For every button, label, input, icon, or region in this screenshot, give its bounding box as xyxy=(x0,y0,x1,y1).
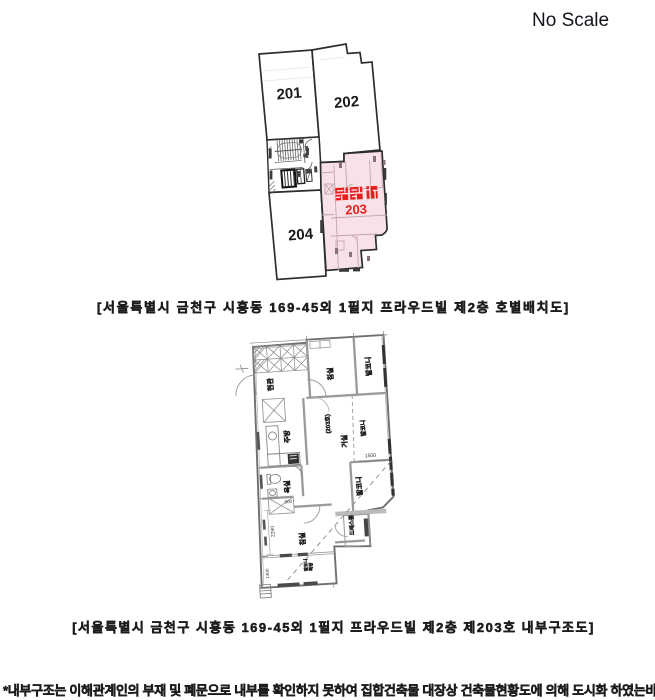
svg-text:1500: 1500 xyxy=(365,453,377,460)
svg-text:현관: 현관 xyxy=(265,377,275,391)
svg-text:발코니: 발코니 xyxy=(354,476,364,496)
svg-text:발코니: 발코니 xyxy=(359,420,368,437)
svg-text:1400: 1400 xyxy=(265,568,271,579)
svg-text:발코니: 발코니 xyxy=(363,356,373,376)
svg-text:주방: 주방 xyxy=(282,429,292,443)
svg-text:확장: 확장 xyxy=(307,562,315,572)
svg-text:욕실: 욕실 xyxy=(282,480,292,493)
svg-text:500: 500 xyxy=(284,499,292,504)
svg-text:침실: 침실 xyxy=(297,532,307,545)
svg-text:(203호): (203호) xyxy=(323,414,332,434)
svg-text:거실: 거실 xyxy=(340,434,350,447)
svg-text:2290: 2290 xyxy=(270,526,277,538)
svg-text:드레스룸: 드레스룸 xyxy=(347,515,356,536)
svg-text:201: 201 xyxy=(276,85,302,104)
svg-text:204: 204 xyxy=(287,225,314,244)
svg-text:침실: 침실 xyxy=(325,367,335,380)
svg-text:203: 203 xyxy=(345,201,367,217)
svg-text:202: 202 xyxy=(333,93,359,112)
